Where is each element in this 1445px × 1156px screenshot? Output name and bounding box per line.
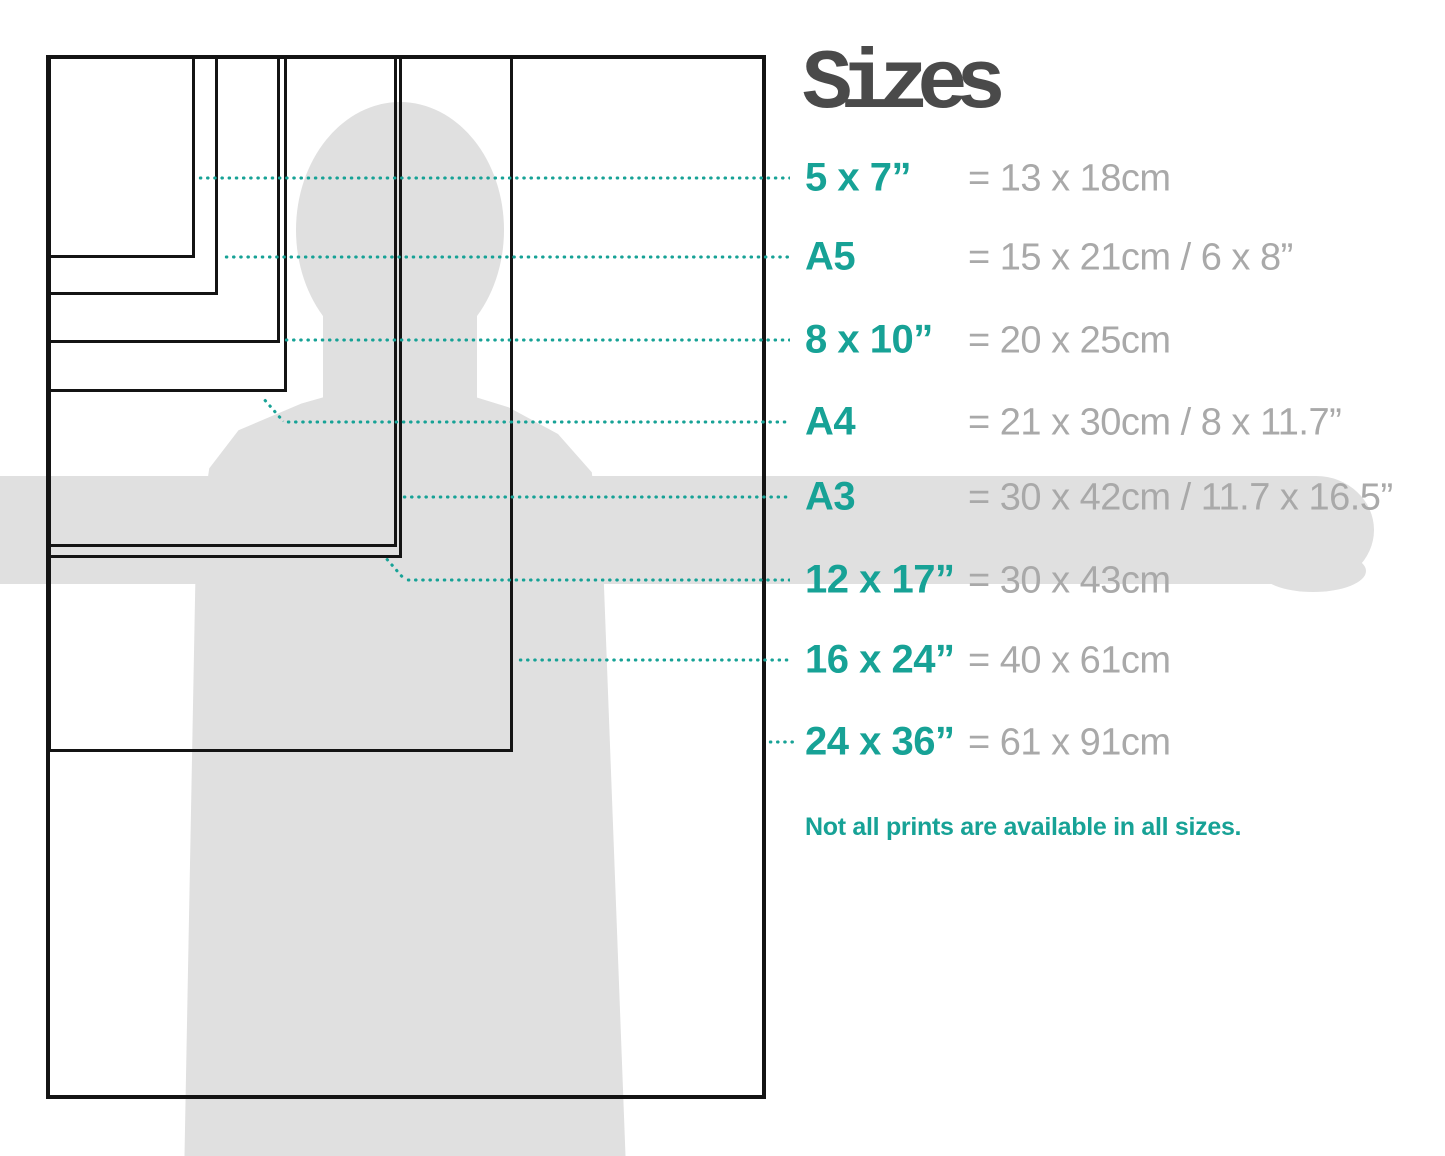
size-row: A5 = 15 x 21cm / 6 x 8”	[805, 235, 1293, 280]
size-label: 24 x 36”	[805, 720, 968, 765]
leader-line-16x24	[517, 658, 790, 662]
leader-line-12x17	[405, 578, 790, 582]
leader-line-a4	[285, 420, 790, 424]
size-value: = 30 x 42cm / 11.7 x 16.5”	[968, 477, 1393, 520]
size-value: = 20 x 25cm	[968, 320, 1171, 363]
size-label: 12 x 17”	[805, 558, 968, 603]
size-label: A5	[805, 235, 968, 280]
size-value: = 15 x 21cm / 6 x 8”	[968, 237, 1293, 280]
size-row: 5 x 7” = 13 x 18cm	[805, 156, 1171, 201]
size-value: = 61 x 91cm	[968, 722, 1171, 765]
size-rect-5x7	[48, 56, 195, 258]
leader-line-8x10	[283, 338, 790, 342]
size-row: A4 = 21 x 30cm / 8 x 11.7”	[805, 400, 1341, 445]
leader-line-a5	[223, 255, 790, 259]
size-row: A3 = 30 x 42cm / 11.7 x 16.5”	[805, 475, 1393, 520]
size-label: 8 x 10”	[805, 318, 968, 363]
size-label: 16 x 24”	[805, 638, 968, 683]
availability-note: Not all prints are available in all size…	[805, 813, 1241, 842]
size-label: A3	[805, 475, 968, 520]
silhouette-hand	[1260, 550, 1366, 592]
page-title: Sizes	[802, 44, 994, 128]
size-label: A4	[805, 400, 968, 445]
size-value: = 21 x 30cm / 8 x 11.7”	[968, 402, 1341, 445]
size-row: 24 x 36” = 61 x 91cm	[805, 720, 1171, 765]
size-value: = 30 x 43cm	[968, 560, 1171, 603]
size-label: 5 x 7”	[805, 156, 968, 201]
size-row: 12 x 17” = 30 x 43cm	[805, 558, 1171, 603]
leader-line-24x36	[767, 740, 796, 744]
leader-line-5x7	[197, 176, 790, 180]
size-value: = 40 x 61cm	[968, 640, 1171, 683]
leader-line-a3	[401, 495, 790, 499]
size-row: 8 x 10” = 20 x 25cm	[805, 318, 1171, 363]
print-size-guide: Sizes 5 x 7” = 13 x 18cm A5 = 15 x 21cm …	[0, 0, 1445, 1156]
size-row: 16 x 24” = 40 x 61cm	[805, 638, 1171, 683]
size-value: = 13 x 18cm	[968, 158, 1171, 201]
